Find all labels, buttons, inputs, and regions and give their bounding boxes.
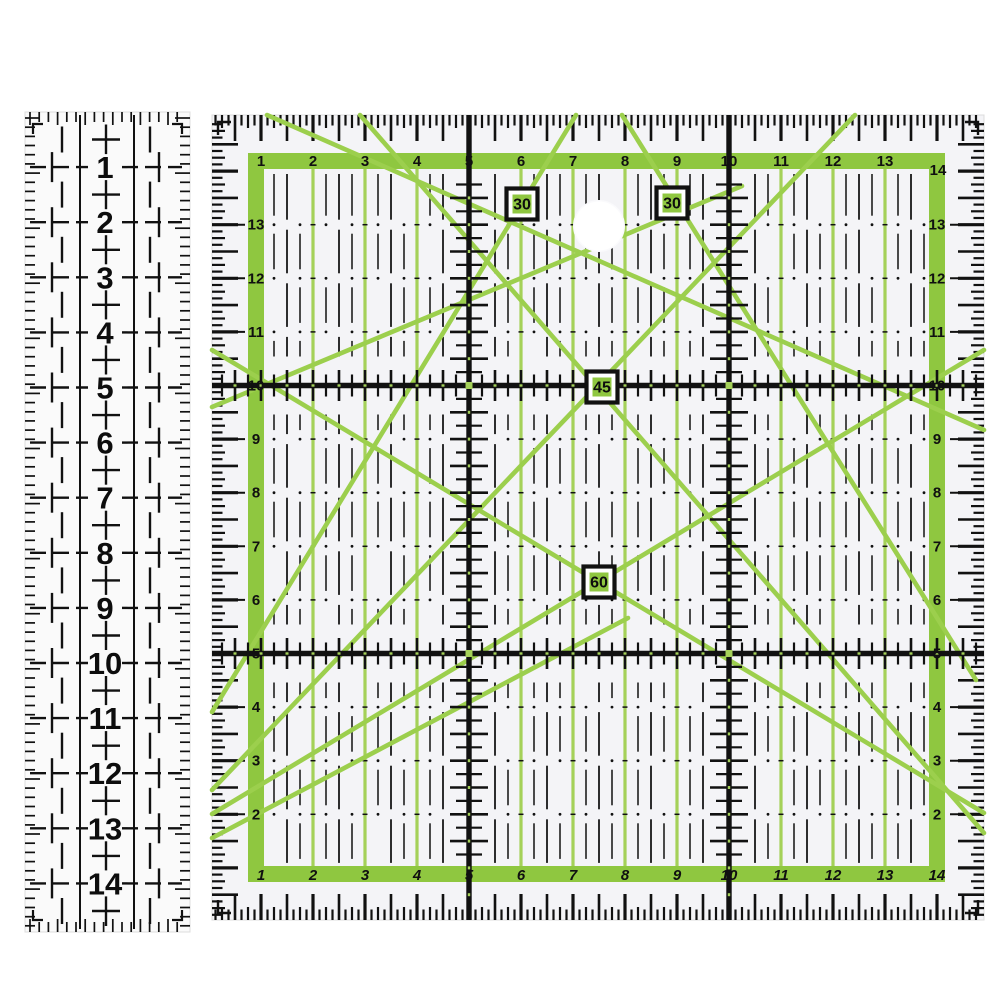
svg-text:3: 3 [361,867,370,884]
svg-text:10: 10 [721,867,738,884]
svg-text:5: 5 [465,153,473,170]
svg-text:12: 12 [825,867,842,884]
svg-text:5: 5 [933,646,941,663]
svg-text:1: 1 [257,867,265,884]
svg-text:13: 13 [929,217,946,234]
svg-text:1: 1 [257,153,265,170]
svg-text:8: 8 [96,536,113,571]
svg-text:5: 5 [96,371,113,406]
svg-text:11: 11 [89,701,122,736]
svg-text:3: 3 [361,153,369,170]
svg-text:11: 11 [929,324,945,341]
svg-text:14: 14 [88,866,123,901]
svg-text:13: 13 [877,867,894,884]
svg-text:60: 60 [590,575,608,592]
svg-text:5: 5 [252,646,260,663]
svg-text:7: 7 [569,153,577,170]
svg-text:13: 13 [877,153,894,170]
svg-text:2: 2 [309,153,317,170]
svg-text:9: 9 [933,431,941,448]
svg-text:8: 8 [252,485,260,502]
svg-text:30: 30 [663,196,681,213]
svg-text:4: 4 [933,699,942,716]
svg-text:3: 3 [96,260,113,295]
svg-text:2: 2 [308,867,318,884]
svg-text:2: 2 [96,205,113,240]
svg-text:11: 11 [248,324,264,341]
svg-text:13: 13 [248,217,265,234]
svg-text:9: 9 [673,153,681,170]
svg-text:5: 5 [465,867,474,884]
svg-text:45: 45 [593,380,611,397]
svg-text:12: 12 [248,270,265,287]
svg-text:12: 12 [929,270,946,287]
svg-text:6: 6 [517,153,525,170]
svg-text:4: 4 [412,867,422,884]
svg-text:4: 4 [96,315,114,350]
svg-text:3: 3 [252,753,260,770]
svg-text:10: 10 [248,378,265,395]
svg-text:12: 12 [825,153,842,170]
svg-text:8: 8 [933,485,941,502]
svg-text:4: 4 [252,699,261,716]
svg-text:6: 6 [517,867,526,884]
svg-text:3: 3 [933,753,941,770]
svg-text:8: 8 [621,867,630,884]
svg-text:7: 7 [933,538,941,555]
svg-text:7: 7 [569,867,578,884]
svg-text:9: 9 [252,431,260,448]
svg-text:30: 30 [513,197,531,214]
svg-text:10: 10 [929,378,946,395]
svg-text:14: 14 [930,162,947,179]
svg-text:2: 2 [252,806,260,823]
svg-text:9: 9 [673,867,682,884]
svg-text:14: 14 [929,867,946,884]
svg-text:6: 6 [96,426,113,461]
svg-text:10: 10 [721,153,738,170]
svg-text:7: 7 [96,481,113,516]
svg-text:9: 9 [96,591,113,626]
svg-text:6: 6 [252,592,260,609]
svg-text:11: 11 [773,867,789,884]
svg-text:4: 4 [413,153,422,170]
svg-text:12: 12 [88,756,122,791]
svg-text:1: 1 [96,150,113,185]
svg-text:11: 11 [773,153,789,170]
svg-text:6: 6 [933,592,941,609]
svg-text:7: 7 [252,538,260,555]
svg-text:13: 13 [88,811,122,846]
svg-text:8: 8 [621,153,629,170]
svg-text:2: 2 [933,806,941,823]
svg-text:10: 10 [88,646,122,681]
